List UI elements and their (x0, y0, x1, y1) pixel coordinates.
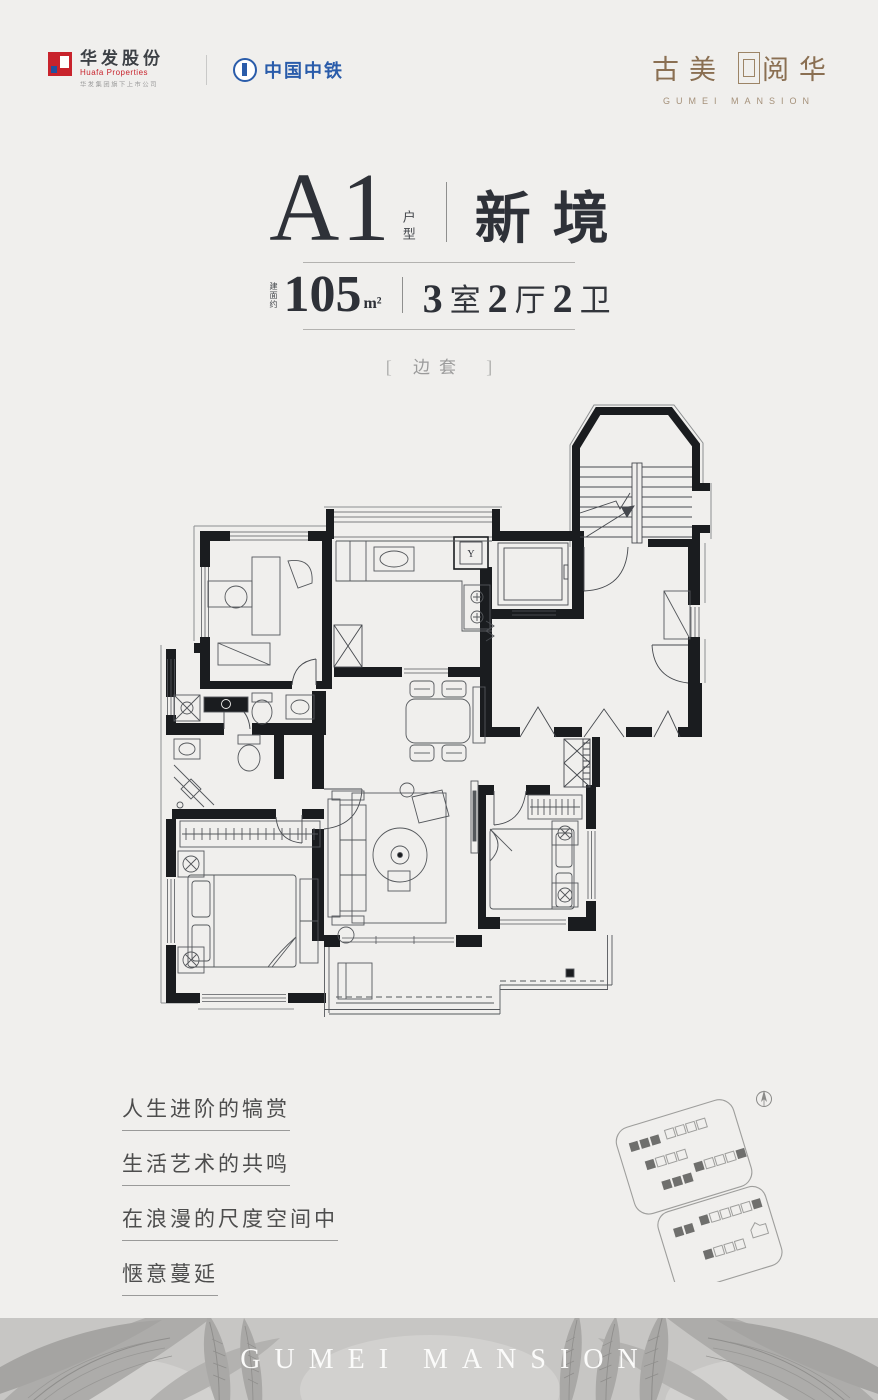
logo-divider (206, 55, 207, 85)
unit-type-label: 户型 (399, 210, 418, 248)
crec-name: 中国中铁 (264, 57, 344, 83)
brand-seal-icon (738, 52, 760, 84)
baths-label: 卫 (580, 287, 611, 315)
brand-cn-right: 阅华 (762, 48, 836, 87)
meter-box: Y (454, 537, 488, 569)
title-rule-top (303, 262, 575, 263)
footer-wordmark: GUMEI MANSION (0, 1318, 878, 1400)
compass-icon (757, 1090, 772, 1107)
brand-en-wordmark: GUMEI MANSION (642, 96, 836, 106)
site-plan-diagram (612, 1082, 802, 1282)
halls-count: 2 (488, 283, 508, 315)
duct-shafts (334, 621, 590, 787)
rooms-label: 室 (450, 287, 481, 315)
staircase (580, 463, 692, 543)
huafa-sub: Huafa Properties (80, 69, 180, 77)
title-block: A1 户型 新境 建面约 105 m² 3 室 2 厅 2 卫 [ 边套 ] (0, 168, 878, 378)
halls-label: 厅 (515, 287, 546, 315)
huafa-mark-icon (48, 52, 72, 76)
huafa-name: 华发股份 (80, 50, 180, 67)
poem-line-1: 人生进阶的犒赏 (122, 1093, 290, 1131)
rooms-count: 3 (423, 283, 443, 315)
plan-furniture (174, 541, 690, 1017)
tag-bracket-close: ] (486, 357, 492, 377)
spec-divider (402, 277, 403, 313)
baths-count: 2 (553, 283, 573, 315)
brand-cn-left: 古美 (642, 48, 726, 87)
crec-globe-icon (233, 58, 257, 82)
tag-bracket-open: [ (386, 357, 392, 377)
unit-name: 新境 (475, 194, 631, 247)
poem-block: 人生进阶的犒赏 生活艺术的共鸣 在浪漫的尺度空间中 惬意蔓延 (122, 1093, 338, 1313)
poster-page: 华发股份 Huafa Properties 华发集团旗下上市公司 中国中铁 古美… (0, 0, 878, 1400)
site-cluster-lower (654, 1183, 785, 1282)
floor-plan-diagram: Y (160, 385, 730, 1045)
huafa-tagline: 华发集团旗下上市公司 (80, 82, 158, 88)
tag-text: 边套 (405, 358, 473, 377)
crec-logo: 中国中铁 (233, 57, 344, 83)
unit-tag: [ 边套 ] (0, 353, 878, 378)
developer-logos: 华发股份 Huafa Properties 华发集团旗下上市公司 中国中铁 (48, 50, 344, 90)
area-prefix: 建面约 (268, 282, 280, 314)
poem-line-3: 在浪漫的尺度空间中 (122, 1203, 338, 1241)
footer-band: GUMEI MANSION (0, 1318, 878, 1400)
site-cluster-upper (613, 1096, 756, 1218)
area-value: 105 (283, 274, 361, 316)
area-unit: m² (363, 295, 381, 315)
huafa-logo: 华发股份 Huafa Properties 华发集团旗下上市公司 (48, 50, 180, 90)
gas-meter-label: Y (467, 549, 474, 560)
unit-code: A1 (269, 168, 392, 248)
title-divider (446, 182, 447, 242)
elevator (498, 543, 568, 605)
title-rule-bottom (303, 329, 575, 330)
poem-line-4: 惬意蔓延 (122, 1258, 218, 1296)
poem-line-2: 生活艺术的共鸣 (122, 1148, 290, 1186)
project-brand-logo: 古美 阅华 GUMEI MANSION (642, 48, 836, 106)
plan-windows (168, 512, 700, 1002)
layout-spec: 3 室 2 厅 2 卫 (423, 283, 611, 315)
